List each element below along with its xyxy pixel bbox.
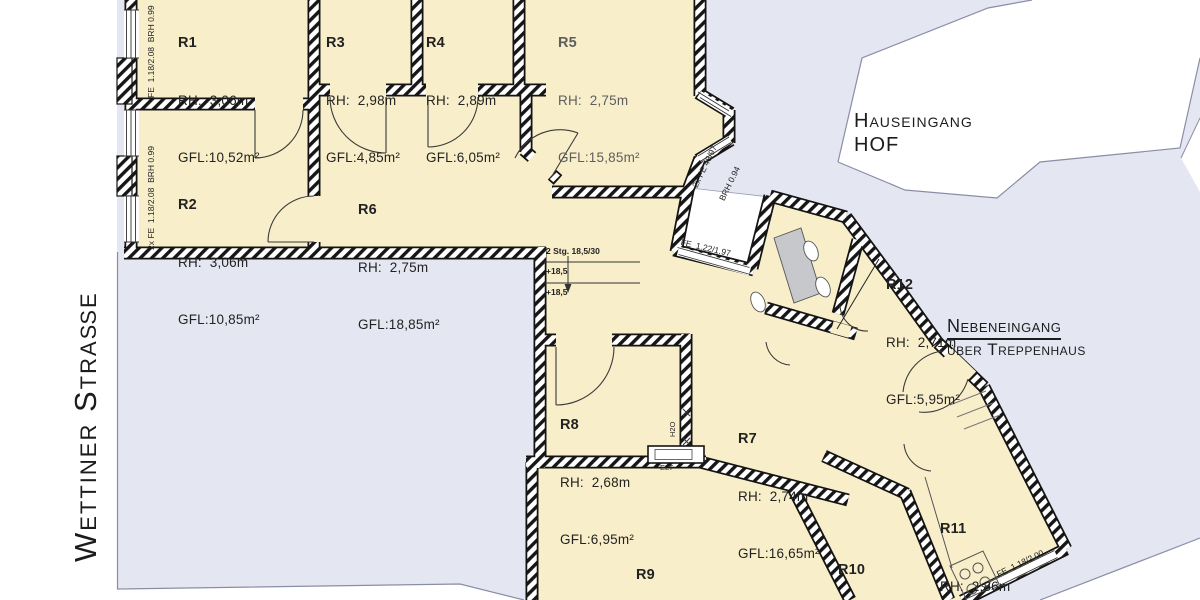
window-annotation-left-bottom: 2x FE 1.18/2.08 BRH 0.99: [146, 146, 156, 250]
room-area: GFL:15,85m²: [558, 148, 640, 167]
room-label-r11: R11 RH: 2,86m GFL:10,15m²: [940, 482, 1022, 600]
room-label-r5: R5 RH: 2,75m GFL:15,85m²: [558, 0, 640, 186]
room-height: RH: 2,75m: [558, 91, 640, 110]
hauseingang-label: Hauseingang: [854, 110, 973, 133]
room-area: GFL:5,95m²: [886, 390, 960, 409]
stairs-annotation: 2 Stg. 18,5/30: [546, 246, 600, 256]
hof-label: HOF: [854, 134, 899, 157]
room-label-r3: R3 RH: 2,98m GFL:4,85m²: [326, 0, 400, 186]
room-name: R4: [426, 34, 500, 53]
nebeneingang-label: Nebeneingang: [947, 316, 1061, 340]
room-height: RH: 3,06m: [178, 91, 260, 110]
room-height: RH: 2,86m: [940, 577, 1022, 596]
room-area: GFL:10,85m²: [178, 310, 260, 329]
room-name: R12: [886, 276, 960, 295]
nebeneingang-sub-label: über Treppenhaus: [947, 340, 1086, 360]
wall-pier: [117, 156, 132, 196]
room-name: R7: [738, 430, 820, 449]
window-annotation-left-top: FE 1.18/2.08 BRH 0.99: [146, 5, 156, 98]
room-name: R1: [178, 34, 260, 53]
street-label: Wettiner Straße: [68, 291, 104, 562]
room-label-r8: R8 RH: 2,68m GFL:6,95m²: [560, 378, 634, 568]
wall-pier: [117, 58, 132, 104]
elt-label: ELT: [660, 463, 673, 472]
room-label-r7: R7 RH: 2,74m GFL:16,65m²: [738, 392, 820, 582]
left-wall-windows: [124, 10, 139, 242]
room-label-r10: R10 RH: 2,86m GFL:8,80m²: [838, 523, 912, 600]
room-name: R5: [558, 34, 640, 53]
room-label-r6: R6 RH: 2,75m GFL:18,85m²: [358, 163, 440, 353]
room-name: R10: [838, 561, 912, 580]
door-opening: [832, 327, 850, 332]
room-height: RH: 2,74m: [738, 487, 820, 506]
room-height: RH: 2,68m: [560, 473, 634, 492]
room-area: GFL:18,85m²: [358, 315, 440, 334]
room-name: R9: [636, 566, 718, 585]
room-name: R3: [326, 34, 400, 53]
room-area: GFL:6,95m²: [560, 530, 634, 549]
room-name: R2: [178, 196, 260, 215]
level-annotation-a: +18,5: [546, 266, 568, 276]
room-name: R11: [940, 520, 1022, 539]
h2o-label: H2O: [668, 422, 677, 437]
room-area: GFL:16,65m²: [738, 544, 820, 563]
room-height: RH: 2,89m: [426, 91, 500, 110]
room-height: RH: 3,06m: [178, 253, 260, 272]
room-height: RH: 2,75m: [358, 258, 440, 277]
room-label-r9: R9 RH: 3,06m GFL:31,85m²: [636, 528, 718, 600]
bay-annotation-line1: 2x FE 48/97: [690, 144, 719, 190]
level-annotation-b: +18,5: [546, 287, 568, 297]
room-label-r2: R2 RH: 3,06m GFL:10,85m²: [178, 158, 260, 348]
room-label-r4: R4 RH: 2,89m GFL:6,05m²: [426, 0, 500, 186]
floorplan-canvas: R1 RH: 3,06m GFL:10,52m² R2 RH: 3,06m GF…: [0, 0, 1200, 600]
room-name: R6: [358, 201, 440, 220]
room-height: RH: 2,98m: [326, 91, 400, 110]
room-name: R8: [560, 416, 634, 435]
